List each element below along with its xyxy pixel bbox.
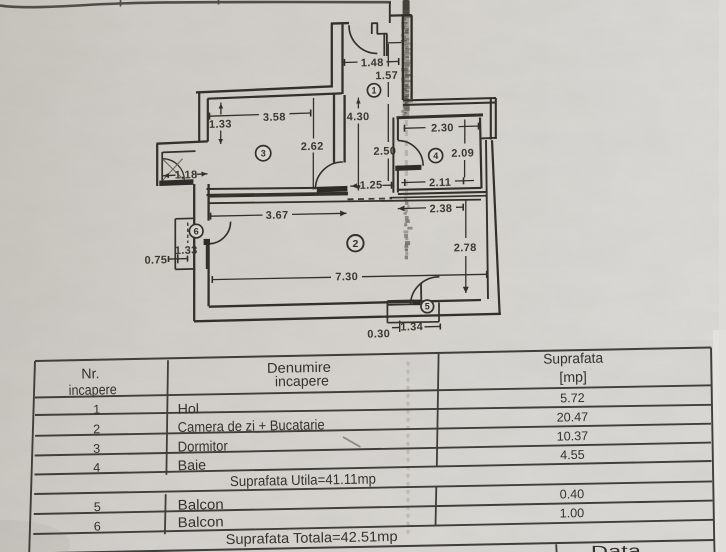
svg-text:0.30: 0.30 <box>367 328 390 340</box>
svg-text:20.47: 20.47 <box>557 410 589 425</box>
svg-text:5: 5 <box>94 500 101 514</box>
svg-text:Balcon: Balcon <box>178 514 224 531</box>
svg-text:4.30: 4.30 <box>347 111 370 123</box>
svg-text:2.09: 2.09 <box>451 147 474 159</box>
svg-text:Camera de zi + Bucatarie: Camera de zi + Bucatarie <box>178 417 325 436</box>
svg-text:2.38: 2.38 <box>429 203 452 215</box>
svg-text:6: 6 <box>94 520 101 534</box>
svg-text:Suprafata Utila=41.11mp: Suprafata Utila=41.11mp <box>230 471 376 490</box>
svg-text:Suprafata: Suprafata <box>543 351 603 368</box>
svg-text:0.40: 0.40 <box>560 487 585 501</box>
svg-text:Balcon: Balcon <box>178 497 224 514</box>
svg-text:1.18: 1.18 <box>175 169 198 181</box>
svg-text:2.11: 2.11 <box>429 177 451 189</box>
svg-text:Suprafata Totala=42.51mp: Suprafata Totala=42.51mp <box>225 529 397 548</box>
svg-text:3: 3 <box>261 148 266 158</box>
svg-text:2.78: 2.78 <box>454 242 477 254</box>
svg-text:2.62: 2.62 <box>301 141 324 153</box>
svg-text:0.75: 0.75 <box>144 254 167 266</box>
svg-text:2: 2 <box>93 422 100 436</box>
svg-text:1: 1 <box>93 403 100 417</box>
svg-text:[mp]: [mp] <box>559 370 587 387</box>
svg-text:5.72: 5.72 <box>560 391 585 405</box>
svg-text:2.30: 2.30 <box>431 122 454 134</box>
svg-text:3.67: 3.67 <box>266 209 289 221</box>
svg-text:4: 4 <box>433 151 438 161</box>
svg-text:1.34: 1.34 <box>400 321 424 333</box>
svg-text:10.37: 10.37 <box>557 429 589 444</box>
svg-text:1: 1 <box>371 86 376 96</box>
svg-text:Baie: Baie <box>178 458 207 475</box>
svg-text:1.25: 1.25 <box>360 179 383 191</box>
svg-text:Dormitor: Dormitor <box>178 439 229 456</box>
svg-text:6: 6 <box>194 227 199 238</box>
svg-text:7.30: 7.30 <box>335 271 358 283</box>
svg-text:Hol: Hol <box>178 401 200 417</box>
svg-text:Data: Data <box>591 543 642 552</box>
svg-text:incapere: incapere <box>69 382 117 399</box>
svg-text:4.55: 4.55 <box>560 448 585 462</box>
svg-text:3.58: 3.58 <box>263 111 286 123</box>
svg-text:Nr.: Nr. <box>81 366 99 382</box>
svg-text:1.48: 1.48 <box>361 57 384 69</box>
svg-text:1.00: 1.00 <box>560 506 585 520</box>
svg-text:incapere: incapere <box>275 373 329 390</box>
svg-text:5: 5 <box>425 302 430 312</box>
svg-text:1.33: 1.33 <box>209 118 232 130</box>
svg-text:2: 2 <box>352 238 358 250</box>
svg-text:4: 4 <box>93 461 100 475</box>
svg-text:1.57: 1.57 <box>375 70 398 82</box>
svg-text:3: 3 <box>93 442 100 456</box>
